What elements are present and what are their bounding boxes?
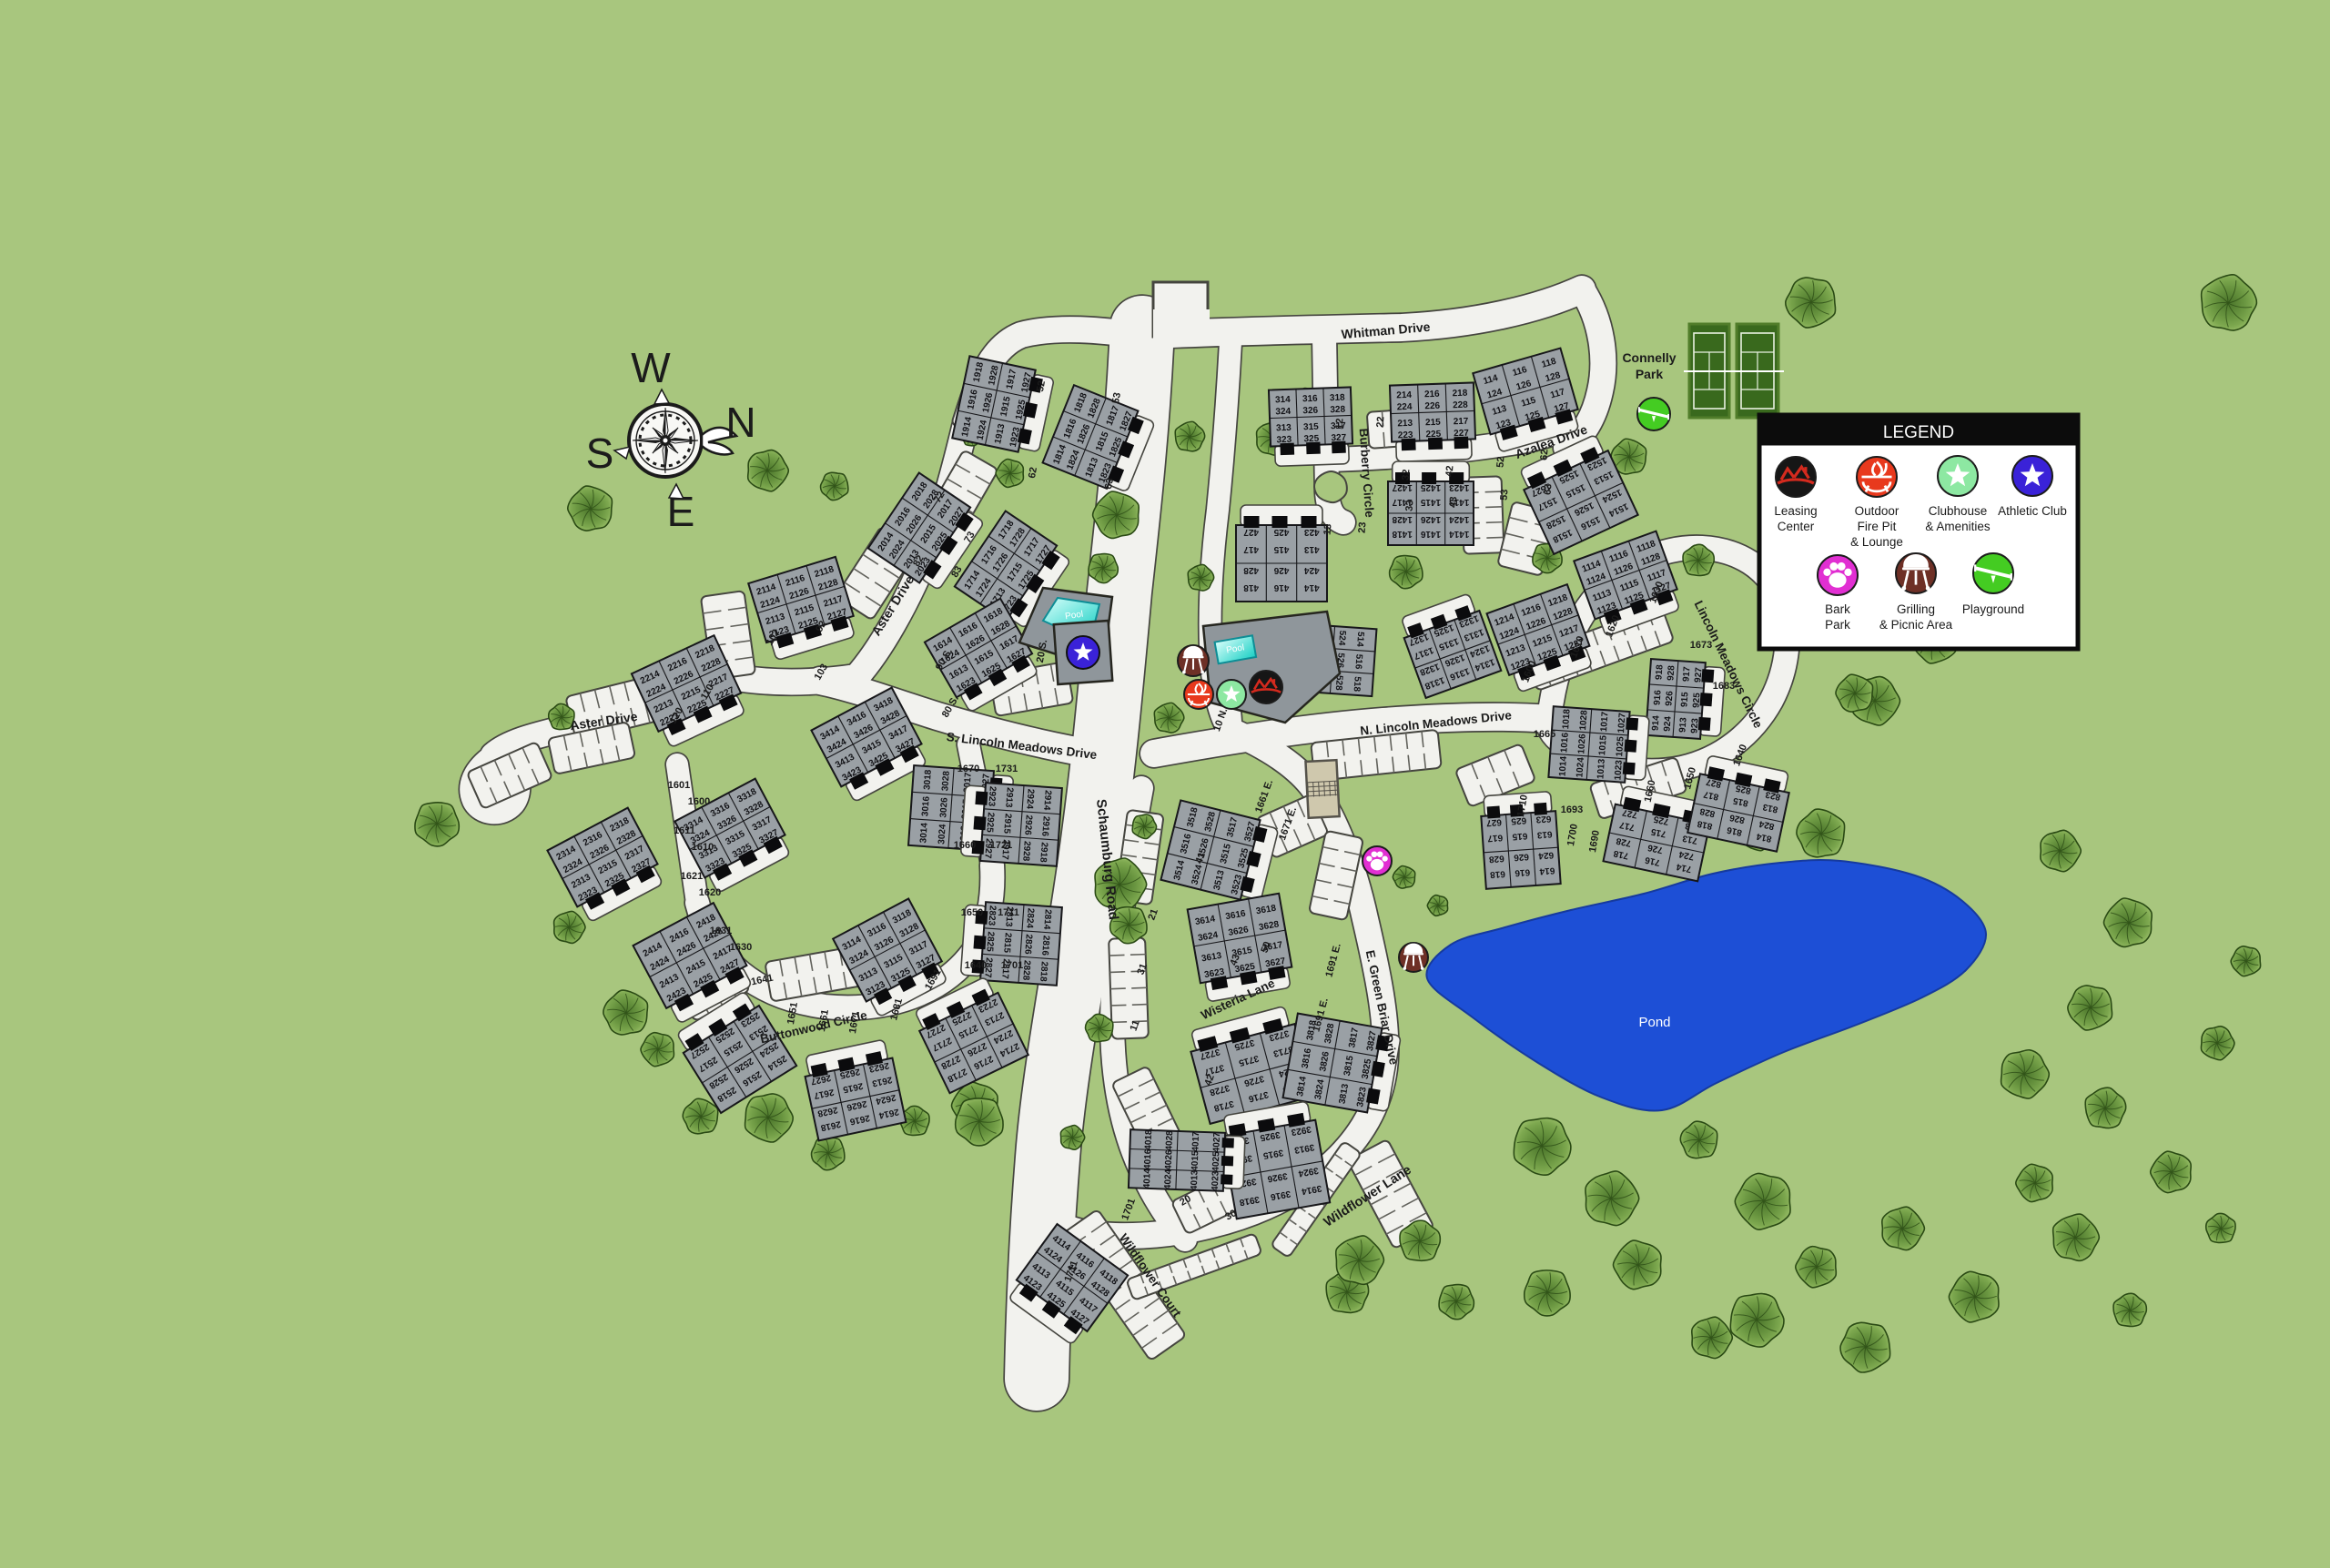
svg-text:Outdoor: Outdoor <box>1855 504 1899 518</box>
svg-text:1414: 1414 <box>1449 529 1470 539</box>
svg-text:Clubhouse: Clubhouse <box>1929 504 1988 518</box>
svg-text:4018: 4018 <box>1143 1129 1154 1150</box>
svg-text:615: 615 <box>1512 830 1528 841</box>
svg-text:2823: 2823 <box>986 905 998 926</box>
svg-text:2925: 2925 <box>984 812 996 833</box>
svg-text:423: 423 <box>1304 527 1320 537</box>
svg-text:318: 318 <box>1330 393 1345 404</box>
svg-text:Fire Pit: Fire Pit <box>1858 520 1897 533</box>
svg-text:1027: 1027 <box>1616 713 1628 733</box>
svg-text:1611: 1611 <box>674 825 695 836</box>
svg-text:52: 52 <box>1495 456 1507 468</box>
svg-text:324: 324 <box>1275 407 1291 418</box>
svg-text:Park: Park <box>1825 618 1850 632</box>
svg-text:226: 226 <box>1424 401 1440 412</box>
svg-text:3028: 3028 <box>940 770 952 791</box>
svg-text:2924: 2924 <box>1024 788 1036 809</box>
svg-text:218: 218 <box>1452 389 1467 400</box>
svg-text:1673: 1673 <box>1690 640 1712 651</box>
svg-text:1017: 1017 <box>1599 711 1611 732</box>
svg-text:2825: 2825 <box>984 931 996 952</box>
svg-text:313: 313 <box>1276 423 1292 434</box>
svg-text:1693: 1693 <box>1561 804 1583 815</box>
svg-text:918: 918 <box>1654 664 1665 681</box>
svg-text:4027: 4027 <box>1211 1131 1222 1152</box>
svg-text:1665: 1665 <box>1534 729 1555 740</box>
svg-text:617: 617 <box>1487 832 1504 843</box>
svg-text:1023: 1023 <box>1613 759 1625 780</box>
svg-text:926: 926 <box>1664 690 1675 706</box>
svg-text:1018: 1018 <box>1561 708 1573 729</box>
svg-text:417: 417 <box>1243 544 1259 554</box>
svg-text:Athletic Club: Athletic Club <box>1998 504 2067 518</box>
svg-text:53: 53 <box>1110 391 1123 404</box>
svg-text:1024: 1024 <box>1575 756 1586 777</box>
svg-text:2814: 2814 <box>1041 909 1053 930</box>
svg-text:224: 224 <box>1397 402 1413 413</box>
svg-text:213: 213 <box>1397 419 1413 430</box>
svg-text:22: 22 <box>1375 416 1387 428</box>
svg-text:23: 23 <box>1357 521 1369 533</box>
svg-text:1683: 1683 <box>1713 681 1735 692</box>
svg-text:626: 626 <box>1513 851 1529 862</box>
svg-text:Bark: Bark <box>1825 602 1850 616</box>
svg-text:2815: 2815 <box>1001 932 1013 953</box>
svg-text:Center: Center <box>1778 520 1815 533</box>
svg-text:4024: 4024 <box>1163 1168 1174 1189</box>
svg-text:428: 428 <box>1243 565 1259 575</box>
svg-text:1631: 1631 <box>710 926 732 936</box>
svg-text:924: 924 <box>1662 715 1673 732</box>
svg-text:915: 915 <box>1679 692 1690 708</box>
svg-text:W: W <box>631 344 671 391</box>
svg-text:2916: 2916 <box>1039 815 1051 836</box>
svg-text:2926: 2926 <box>1022 814 1034 835</box>
svg-text:3026: 3026 <box>938 797 950 818</box>
svg-text:2826: 2826 <box>1022 934 1034 955</box>
svg-text:Connelly: Connelly <box>1622 350 1676 365</box>
svg-text:32: 32 <box>1401 469 1413 481</box>
svg-text:Grilling: Grilling <box>1897 602 1935 616</box>
svg-text:618: 618 <box>1489 868 1505 879</box>
svg-text:LEGEND: LEGEND <box>1883 423 1954 442</box>
svg-text:4023: 4023 <box>1211 1170 1221 1191</box>
svg-text:1014: 1014 <box>1557 755 1569 776</box>
svg-text:62: 62 <box>1027 466 1039 479</box>
svg-text:& Amenities: & Amenities <box>1925 520 1991 533</box>
svg-text:1721: 1721 <box>990 840 1012 851</box>
svg-text:2824: 2824 <box>1024 907 1036 928</box>
svg-text:1731: 1731 <box>996 764 1018 774</box>
svg-text:2913: 2913 <box>1003 787 1015 808</box>
svg-text:4013: 4013 <box>1190 1169 1200 1190</box>
svg-text:614: 614 <box>1539 865 1555 875</box>
svg-text:418: 418 <box>1243 582 1259 592</box>
svg-text:53: 53 <box>1499 489 1511 501</box>
svg-text:1026: 1026 <box>1576 733 1588 754</box>
svg-text:& Picnic Area: & Picnic Area <box>1879 618 1953 632</box>
svg-text:424: 424 <box>1304 565 1320 575</box>
svg-text:215: 215 <box>1425 418 1441 429</box>
svg-text:62: 62 <box>1539 449 1551 460</box>
svg-text:216: 216 <box>1424 389 1440 400</box>
svg-text:2918: 2918 <box>1038 842 1049 863</box>
svg-text:3024: 3024 <box>937 824 948 845</box>
svg-text:4026: 4026 <box>1164 1149 1175 1170</box>
svg-text:4016: 4016 <box>1143 1148 1154 1169</box>
svg-text:214: 214 <box>1396 390 1412 401</box>
svg-text:4025: 4025 <box>1211 1151 1222 1172</box>
svg-text:33: 33 <box>1404 500 1416 511</box>
svg-text:Pond: Pond <box>1638 1015 1670 1030</box>
svg-text:63: 63 <box>1543 483 1555 495</box>
svg-text:1600: 1600 <box>688 796 710 807</box>
svg-text:4017: 4017 <box>1190 1131 1201 1152</box>
svg-text:N: N <box>725 399 755 446</box>
svg-text:1426: 1426 <box>1420 514 1441 524</box>
svg-text:414: 414 <box>1304 582 1320 592</box>
svg-text:628: 628 <box>1488 853 1504 864</box>
svg-text:416: 416 <box>1273 582 1289 592</box>
svg-text:1028: 1028 <box>1578 710 1590 731</box>
svg-text:314: 314 <box>1275 395 1291 406</box>
svg-text:914: 914 <box>1651 714 1662 731</box>
svg-text:S: S <box>586 430 614 477</box>
svg-text:328: 328 <box>1330 405 1345 416</box>
svg-text:43: 43 <box>1448 496 1460 508</box>
svg-text:427: 427 <box>1243 527 1259 537</box>
svg-text:1650: 1650 <box>961 907 983 918</box>
svg-text:2915: 2915 <box>1001 813 1013 834</box>
svg-text:315: 315 <box>1303 422 1319 433</box>
svg-text:3014: 3014 <box>918 822 930 843</box>
svg-text:613: 613 <box>1536 829 1553 840</box>
svg-text:2923: 2923 <box>986 785 998 806</box>
svg-text:1025: 1025 <box>1615 735 1626 756</box>
svg-text:413: 413 <box>1304 544 1320 554</box>
svg-text:425: 425 <box>1273 527 1289 537</box>
svg-text:42: 42 <box>1444 465 1456 477</box>
svg-text:928: 928 <box>1666 664 1677 681</box>
svg-text:1016: 1016 <box>1559 732 1571 753</box>
svg-text:1013: 1013 <box>1596 758 1607 779</box>
svg-text:4015: 4015 <box>1190 1150 1201 1171</box>
svg-text:1428: 1428 <box>1392 514 1413 524</box>
svg-text:13: 13 <box>1322 523 1334 535</box>
svg-text:624: 624 <box>1538 850 1555 861</box>
svg-text:1416: 1416 <box>1420 529 1441 539</box>
svg-text:916: 916 <box>1652 689 1663 705</box>
svg-text:1415: 1415 <box>1420 497 1441 507</box>
svg-text:1601: 1601 <box>668 780 690 791</box>
svg-text:2816: 2816 <box>1039 935 1051 956</box>
svg-text:524: 524 <box>1336 630 1347 646</box>
svg-text:& Lounge: & Lounge <box>1850 535 1903 549</box>
svg-text:2928: 2928 <box>1020 841 1032 862</box>
svg-text:913: 913 <box>1677 717 1688 733</box>
svg-text:Playground: Playground <box>1962 602 2024 616</box>
svg-text:426: 426 <box>1273 565 1289 575</box>
svg-text:3018: 3018 <box>922 769 934 790</box>
svg-text:1660: 1660 <box>954 840 976 851</box>
svg-text:616: 616 <box>1514 866 1531 877</box>
svg-text:516: 516 <box>1352 653 1363 670</box>
svg-text:4028: 4028 <box>1164 1130 1175 1151</box>
svg-text:1424: 1424 <box>1449 514 1470 524</box>
svg-text:2914: 2914 <box>1041 790 1053 811</box>
svg-text:1610: 1610 <box>692 842 714 853</box>
svg-text:415: 415 <box>1273 544 1289 554</box>
svg-text:1630: 1630 <box>730 942 752 953</box>
svg-text:1620: 1620 <box>699 887 721 898</box>
svg-text:217: 217 <box>1454 417 1469 428</box>
svg-text:Park: Park <box>1636 367 1664 381</box>
svg-text:Leasing: Leasing <box>1774 504 1817 518</box>
svg-text:1701: 1701 <box>1001 960 1023 971</box>
svg-text:1711: 1711 <box>998 907 1019 918</box>
svg-text:1621: 1621 <box>681 871 703 882</box>
svg-text:316: 316 <box>1302 394 1318 405</box>
svg-text:1418: 1418 <box>1392 529 1413 539</box>
svg-text:3016: 3016 <box>920 795 932 816</box>
svg-text:1670: 1670 <box>957 764 979 774</box>
svg-text:4014: 4014 <box>1142 1168 1153 1189</box>
svg-text:518: 518 <box>1352 676 1363 693</box>
svg-text:2818: 2818 <box>1038 961 1049 982</box>
svg-text:917: 917 <box>1681 666 1692 683</box>
svg-text:52: 52 <box>1035 379 1048 392</box>
svg-text:326: 326 <box>1302 406 1318 417</box>
svg-text:63: 63 <box>1103 477 1116 490</box>
svg-text:514: 514 <box>1354 632 1365 648</box>
svg-text:1640: 1640 <box>965 960 987 971</box>
svg-text:12: 12 <box>1334 418 1346 430</box>
svg-text:228: 228 <box>1453 400 1468 411</box>
svg-text:1015: 1015 <box>1597 734 1609 755</box>
